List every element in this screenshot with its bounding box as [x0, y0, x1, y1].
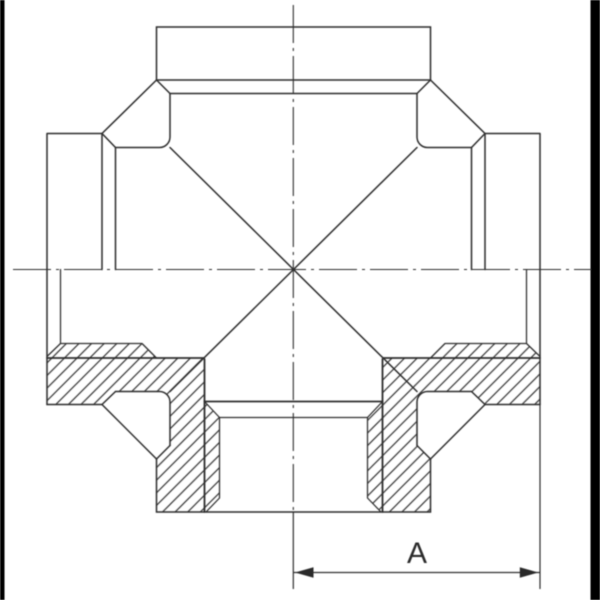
svg-text:A: A	[407, 537, 427, 570]
